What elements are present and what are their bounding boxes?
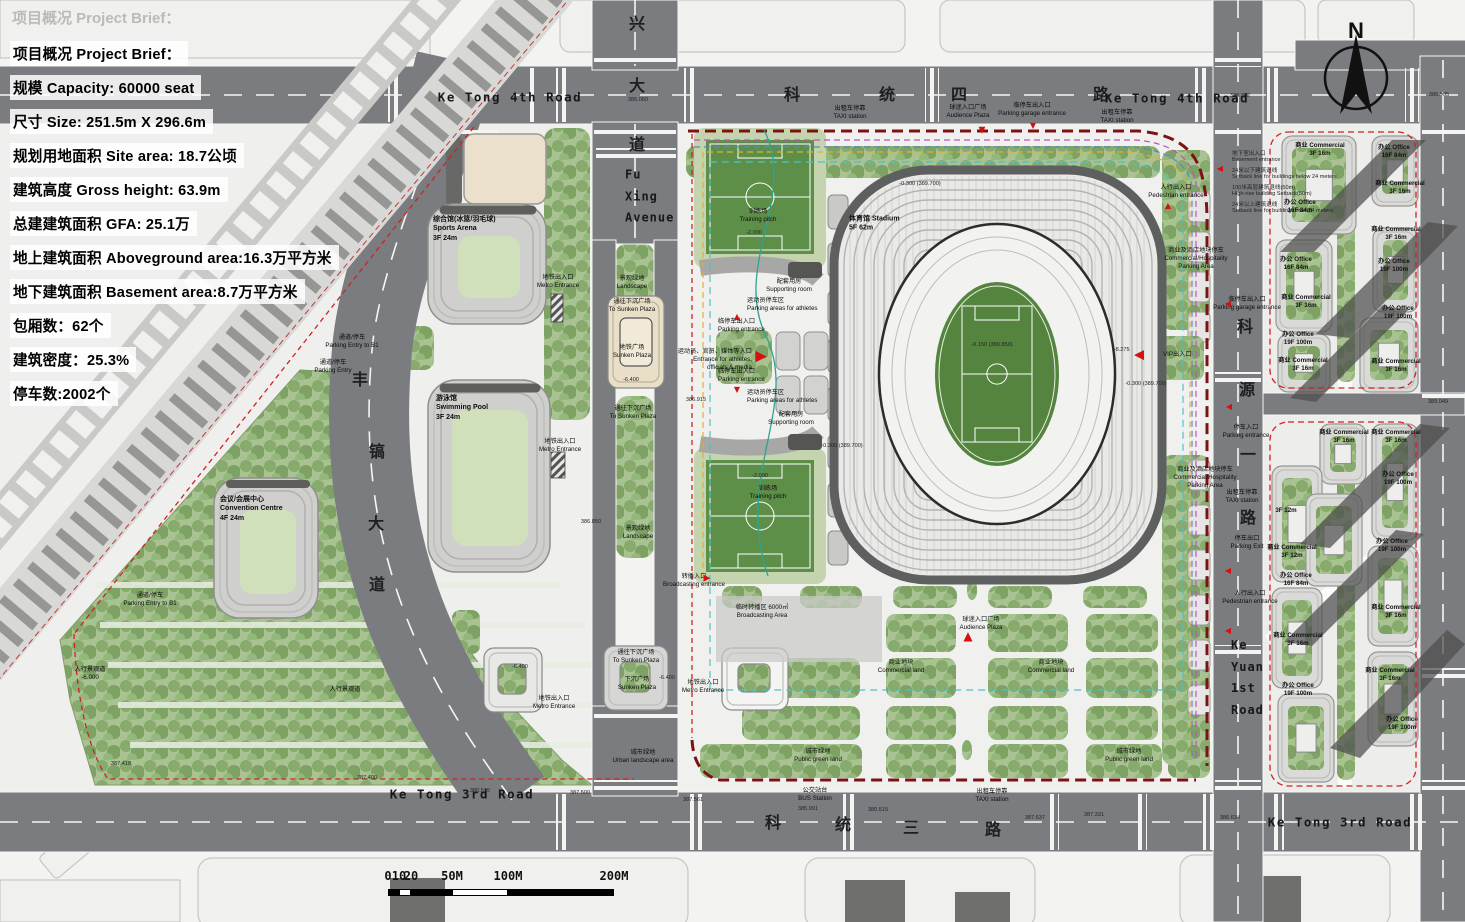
scale-tick-3: 50M (441, 869, 463, 883)
scale-segment-4 (508, 889, 614, 896)
brief-line-parking: 停车数:2002个 (10, 381, 118, 406)
scale-segment-2 (411, 889, 452, 896)
brief-line-density: 建筑密度：25.3% (10, 347, 136, 372)
east-building-6 (1320, 424, 1366, 484)
brief-line-title: 项目概况 Project Brief： (10, 41, 188, 66)
north-arrow: N (1316, 12, 1396, 134)
brief-line-capacity: 规模 Capacity: 60000 seat (10, 75, 201, 100)
scale-tick-0: 0 (384, 869, 391, 883)
scale-segment-1 (399, 889, 411, 896)
brief-line-gfa: 总建建筑面积 GFA: 25.1万 (10, 211, 197, 236)
swimming-pool-building (428, 380, 550, 572)
project-brief-panel: 项目概况 Project Brief： 项目概况 Project Brief： … (10, 6, 370, 415)
site-plan-canvas: N 项目概况 Project Brief： 项目概况 Project Brief… (0, 0, 1465, 922)
brief-line-boxes: 包厢数：62个 (10, 313, 111, 338)
brief-line-basement: 地下建筑面积 Basement area:8.7万平方米 (10, 279, 305, 304)
east-building-13 (1278, 694, 1334, 782)
stadium (834, 170, 1162, 580)
east-building-3 (1276, 240, 1332, 332)
project-brief-watermark: 项目概况 Project Brief： (10, 6, 186, 29)
scale-segment-0 (388, 889, 399, 896)
sports-arena-building (428, 204, 546, 324)
brief-line-size: 尺寸 Size: 251.5m X 296.6m (10, 109, 213, 134)
brief-line-aboveground: 地上建筑面积 Aboveground area:16.3万平方米 (10, 245, 339, 270)
north-needle-icon (1340, 34, 1372, 114)
convention-centre-building (214, 478, 318, 618)
scale-tick-4: 100M (494, 869, 523, 883)
brief-line-height: 建筑高度 Gross height: 63.9m (10, 177, 228, 202)
brief-line-site-area: 规划用地面积 Site area: 18.7公顷 (10, 143, 244, 168)
scale-tick-2: 20 (404, 869, 418, 883)
scale-segment-3 (452, 889, 508, 896)
scale-tick-5: 200M (600, 869, 629, 883)
